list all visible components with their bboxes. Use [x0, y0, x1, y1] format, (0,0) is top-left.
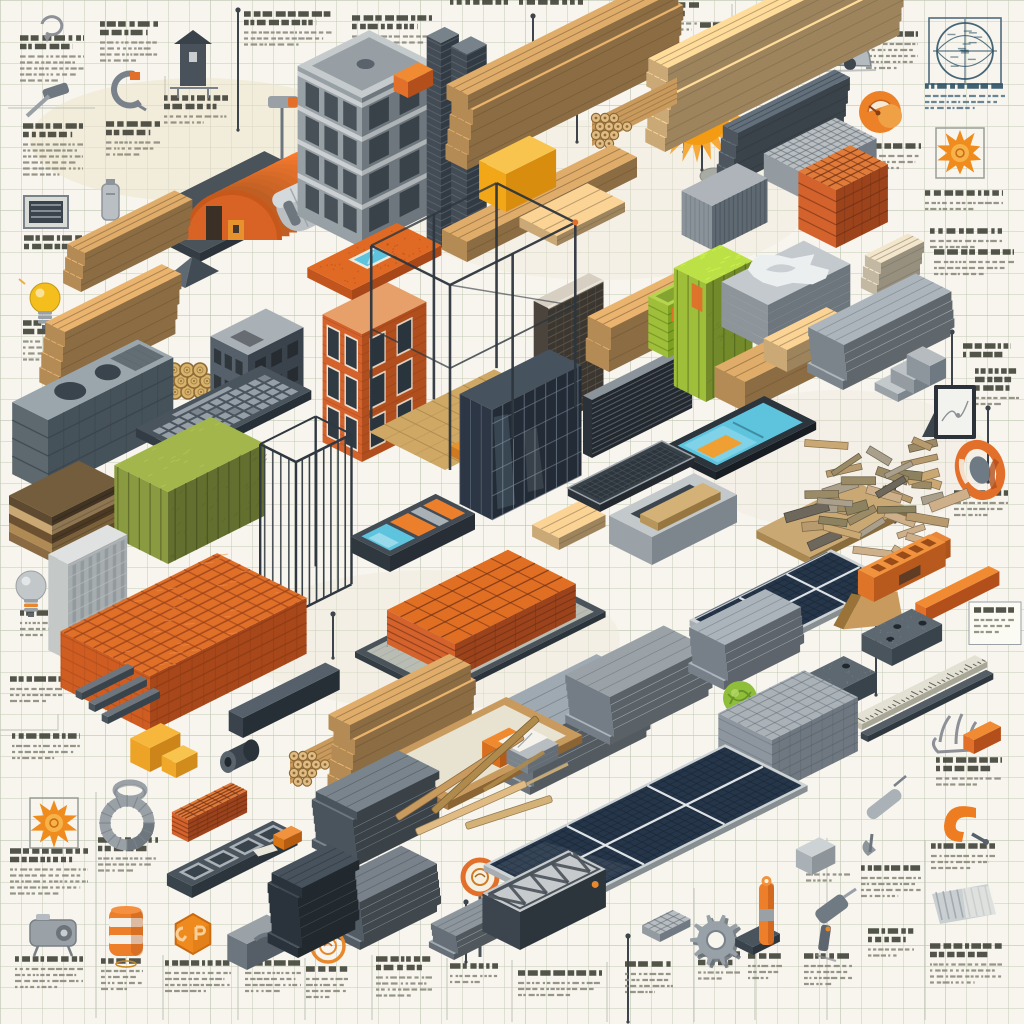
wire-coil — [99, 795, 155, 851]
concrete-frame-building — [298, 30, 434, 248]
annotation-block — [20, 38, 84, 81]
keypad-fragment — [642, 910, 690, 942]
annotation-block — [450, 966, 498, 982]
drill-sketch — [813, 889, 856, 961]
annotation-block — [804, 956, 852, 984]
annotation-block — [244, 14, 332, 45]
terracotta-extrusion — [858, 532, 951, 602]
canister-sketch — [102, 179, 119, 220]
traffic-barrel — [109, 906, 143, 967]
slab-stack — [688, 589, 804, 690]
annotation-block — [925, 86, 1005, 108]
annotation-block — [10, 679, 68, 701]
yellow-blocks — [130, 723, 197, 778]
annotation-block — [930, 946, 1002, 983]
annotation-block — [931, 846, 995, 868]
sun-splat-sketch — [30, 798, 78, 848]
annotation-block — [518, 973, 602, 995]
annotation-block — [963, 346, 1011, 355]
annotation-block — [10, 851, 88, 894]
annotation-block — [376, 959, 432, 996]
sun-sketch-box — [936, 128, 984, 178]
illustration-canvas — [0, 0, 1024, 1024]
gauge-icon — [859, 91, 902, 133]
spec-card — [969, 602, 1021, 645]
annotation-block — [861, 868, 921, 896]
annotation-block — [934, 252, 1014, 274]
orange-chock — [963, 721, 1001, 754]
annotation-block — [625, 964, 673, 992]
annotation-block — [100, 24, 158, 61]
console-tray — [351, 494, 475, 572]
annotation-block — [975, 371, 1019, 404]
outhouse-tower-sketch — [170, 30, 218, 98]
caulk-gun-sketch — [862, 776, 906, 856]
glass-curtain-wall — [460, 349, 582, 520]
bulb-sketch — [16, 571, 46, 617]
annotation-block — [936, 760, 1002, 785]
annotation-block — [12, 736, 80, 758]
scene-svg — [0, 0, 1024, 1024]
window-frame-sketch — [24, 196, 68, 228]
annotation-block — [101, 961, 143, 989]
annotation-block — [930, 231, 1002, 247]
annotation-block — [868, 931, 914, 956]
projector-sketch — [30, 914, 76, 956]
annotation-block — [925, 193, 1003, 209]
guide-line — [0, 714, 58, 730]
annotation-block — [806, 875, 850, 881]
annotation-block — [165, 963, 231, 991]
annotation-block — [306, 969, 348, 997]
annotation-block — [15, 959, 83, 987]
bollard-post — [735, 876, 780, 955]
brick-bar — [172, 783, 247, 843]
hex-badge — [176, 914, 211, 954]
corrugated-sheet-sketch — [932, 884, 996, 924]
roller-cylinder — [220, 739, 259, 773]
clamp-orange-tool — [944, 806, 989, 845]
cube-sketch — [796, 837, 835, 875]
annotation-block — [245, 963, 301, 991]
survey-pole — [949, 329, 954, 391]
annotation-block — [748, 956, 782, 978]
blueprint-globe-sketch — [929, 18, 1001, 84]
survey-pole — [625, 933, 630, 1023]
